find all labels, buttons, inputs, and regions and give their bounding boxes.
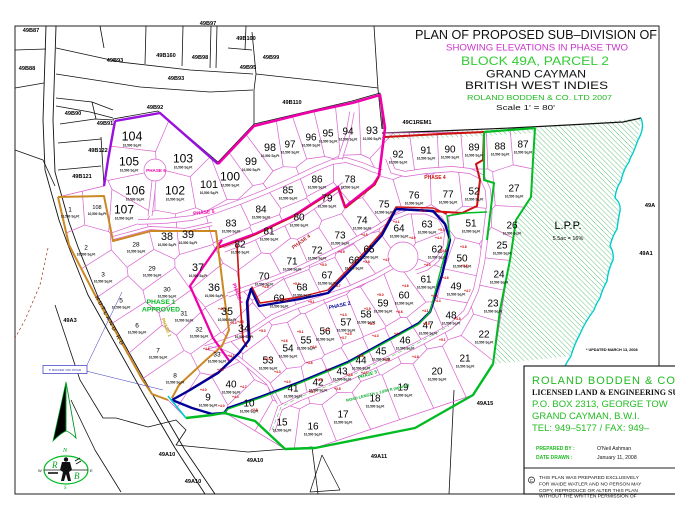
svg-text:10,500 Sq.Ft: 10,500 Sq.Ft xyxy=(231,251,251,255)
svg-text:10,500 Sq.Ft: 10,500 Sq.Ft xyxy=(199,404,219,408)
svg-text:+4.4: +4.4 xyxy=(232,395,239,399)
svg-text:25: 25 xyxy=(496,241,508,252)
svg-text:+5.1: +5.1 xyxy=(293,282,300,286)
svg-text:+4.2: +4.2 xyxy=(383,358,390,362)
svg-text:108: 108 xyxy=(92,205,101,211)
svg-text:49B122: 49B122 xyxy=(88,148,108,154)
svg-text:+4.6: +4.6 xyxy=(442,276,449,280)
svg-text:10,500 Sq.Ft: 10,500 Sq.Ft xyxy=(447,293,467,297)
svg-text:+4.6: +4.6 xyxy=(402,284,409,288)
svg-text:10,500 Sq.Ft: 10,500 Sq.Ft xyxy=(166,197,186,201)
svg-text:+4.3: +4.3 xyxy=(424,263,431,267)
svg-text:10,500 Sq.Ft: 10,500 Sq.Ft xyxy=(319,140,339,144)
svg-text:10,500 Sq.Ft: 10,500 Sq.Ft xyxy=(115,216,135,220)
svg-text:49A11: 49A11 xyxy=(371,454,387,460)
svg-text:31: 31 xyxy=(180,310,188,317)
svg-text:10,500 Sq.Ft: 10,500 Sq.Ft xyxy=(331,242,351,246)
svg-text:92: 92 xyxy=(392,150,404,161)
svg-text:ROLAND BODDEN & CO. LTD: ROLAND BODDEN & CO. LTD 2007 xyxy=(467,93,612,102)
svg-text:54: 54 xyxy=(282,344,294,355)
svg-text:77: 77 xyxy=(442,190,454,201)
svg-text:10,500 Sq.Ft: 10,500 Sq.Ft xyxy=(514,151,534,155)
svg-text:10,500 Sq.Ft: 10,500 Sq.Ft xyxy=(128,330,148,334)
svg-text:52: 52 xyxy=(468,187,480,198)
svg-text:+4.4: +4.4 xyxy=(434,299,441,303)
svg-text:86: 86 xyxy=(311,175,323,186)
svg-text:10,500 Sq.Ft: 10,500 Sq.Ft xyxy=(374,310,394,314)
svg-text:+3.8: +3.8 xyxy=(440,249,447,253)
svg-text:57: 57 xyxy=(340,318,352,329)
svg-text:APPROVED: APPROVED xyxy=(142,307,180,314)
svg-text:10,500 Sq.Ft: 10,500 Sq.Ft xyxy=(396,347,416,351)
svg-text:10,500 Sq.Ft: 10,500 Sq.Ft xyxy=(175,318,195,322)
svg-text:10,500 Sq.Ft: 10,500 Sq.Ft xyxy=(77,252,97,256)
svg-text:10,500 Sq.Ft: 10,500 Sq.Ft xyxy=(88,212,108,216)
svg-text:10,500 Sq.Ft: 10,500 Sq.Ft xyxy=(205,294,225,298)
svg-text:+4.4: +4.4 xyxy=(264,357,271,361)
svg-text:10,500 Sq.Ft: 10,500 Sq.Ft xyxy=(222,391,242,395)
svg-text:+3.6: +3.6 xyxy=(461,264,468,268)
svg-text:82: 82 xyxy=(234,240,246,251)
svg-text:COPY, REPRODUCE OR ALTER T: COPY, REPRODUCE OR ALTER THIS PLAN xyxy=(539,488,638,494)
svg-text:GRAND CAYMAN, B.W.I.: GRAND CAYMAN, B.W.I. xyxy=(532,411,640,422)
svg-text:38: 38 xyxy=(161,231,173,243)
svg-text:O'Neil Ashman: O'Neil Ashman xyxy=(597,446,631,452)
svg-text:9: 9 xyxy=(205,393,211,404)
svg-text:10,500 Sq.Ft: 10,500 Sq.Ft xyxy=(490,281,510,285)
svg-text:88: 88 xyxy=(494,142,506,153)
svg-text:102: 102 xyxy=(165,183,185,197)
svg-text:61: 61 xyxy=(420,275,432,286)
svg-text:84: 84 xyxy=(255,205,267,216)
svg-text:10,500 Sq.Ft: 10,500 Sq.Ft xyxy=(333,378,353,382)
svg-text:10,500 Sq.Ft: 10,500 Sq.Ft xyxy=(318,205,338,209)
svg-text:+4.3: +4.3 xyxy=(372,334,379,338)
svg-text:PLAN OF PROPOSED SUB–DIVISI: PLAN OF PROPOSED SUB–DIVISION OF xyxy=(415,27,657,42)
svg-text:+4.0: +4.0 xyxy=(323,328,330,332)
svg-text:+4.7: +4.7 xyxy=(309,390,316,394)
svg-text:8: 8 xyxy=(173,372,177,379)
svg-text:49B91: 49B91 xyxy=(97,121,113,127)
svg-text:+4.7: +4.7 xyxy=(240,385,247,389)
svg-text:+3.7: +3.7 xyxy=(334,284,341,288)
svg-text:+3.8: +3.8 xyxy=(334,387,341,391)
svg-text:96: 96 xyxy=(305,133,317,144)
svg-text:46: 46 xyxy=(399,336,411,347)
svg-text:10,500 Sq.Ft: 10,500 Sq.Ft xyxy=(334,421,354,425)
svg-text:+3.7: +3.7 xyxy=(340,336,347,340)
svg-text:94: 94 xyxy=(342,127,354,138)
svg-text:+5.0: +5.0 xyxy=(377,293,384,297)
svg-text:+4.4: +4.4 xyxy=(435,236,442,240)
svg-text:20: 20 xyxy=(431,367,443,378)
svg-text:65: 65 xyxy=(363,245,375,256)
svg-text:106: 106 xyxy=(125,183,145,197)
svg-text:+4.3: +4.3 xyxy=(274,370,281,374)
svg-text:+3.8: +3.8 xyxy=(346,373,353,377)
svg-text:Scale 1' = 80': Scale 1' = 80' xyxy=(496,103,556,112)
svg-text:10,500 Sq.Ft: 10,500 Sq.Ft xyxy=(503,232,523,236)
svg-text:+4.6: +4.6 xyxy=(281,339,288,343)
svg-text:2: 2 xyxy=(84,244,88,251)
svg-text:+4.7: +4.7 xyxy=(394,332,401,336)
svg-text:49B93: 49B93 xyxy=(168,76,184,82)
svg-text:72: 72 xyxy=(311,246,323,257)
svg-text:34: 34 xyxy=(238,323,250,335)
svg-text:+5.1: +5.1 xyxy=(297,330,304,334)
svg-text:+4.1: +4.1 xyxy=(228,354,235,358)
svg-text:64: 64 xyxy=(393,224,405,235)
svg-text:33: 33 xyxy=(213,351,221,358)
svg-text:49A3: 49A3 xyxy=(63,318,76,324)
svg-text:59: 59 xyxy=(377,299,389,310)
svg-text:97: 97 xyxy=(284,140,296,151)
svg-text:79: 79 xyxy=(321,194,333,205)
svg-text:+4.7: +4.7 xyxy=(325,368,332,372)
svg-text:10,500 Sq.Ft: 10,500 Sq.Ft xyxy=(341,186,361,190)
svg-text:B: B xyxy=(74,471,80,481)
svg-text:78: 78 xyxy=(344,175,356,186)
svg-text:5.5ac = 16%: 5.5ac = 16% xyxy=(553,236,584,242)
svg-text:104: 104 xyxy=(122,130,143,144)
svg-text:10,500 Sq.Ft: 10,500 Sq.Ft xyxy=(290,224,310,228)
svg-text:93: 93 xyxy=(366,125,378,137)
svg-text:10,500 Sq.Ft: 10,500 Sq.Ft xyxy=(418,231,438,235)
svg-text:101: 101 xyxy=(200,179,218,191)
svg-text:49B97: 49B97 xyxy=(200,21,216,27)
svg-text:49B110: 49B110 xyxy=(282,100,301,106)
svg-text:10,500 Sq.Ft: 10,500 Sq.Ft xyxy=(462,230,482,234)
svg-text:10,500 Sq.Ft: 10,500 Sq.Ft xyxy=(394,394,414,398)
svg-text:10,500 Sq.Ft: 10,500 Sq.Ft xyxy=(441,156,461,160)
svg-text:+5.0: +5.0 xyxy=(320,263,327,267)
svg-text:22: 22 xyxy=(478,330,490,341)
svg-text:81: 81 xyxy=(263,227,275,238)
svg-text:10,500 Sq.Ft: 10,500 Sq.Ft xyxy=(260,238,280,242)
svg-text:+4.1: +4.1 xyxy=(422,309,429,313)
svg-text:+4.7: +4.7 xyxy=(464,289,471,293)
svg-text:98: 98 xyxy=(264,142,276,154)
svg-text:71: 71 xyxy=(286,257,298,268)
svg-text:10,500 Sq.Ft: 10,500 Sq.Ft xyxy=(345,267,365,271)
svg-text:49A: 49A xyxy=(645,203,655,209)
svg-text:28: 28 xyxy=(132,241,140,248)
svg-text:6: 6 xyxy=(135,322,139,329)
svg-text:ROLAND BODDEN & CO.: ROLAND BODDEN & CO. xyxy=(532,375,675,387)
svg-text:WITHOUT THE WRITTEN PERMISS: WITHOUT THE WRITTEN PERMISSION OF xyxy=(539,494,637,500)
svg-text:10,500 Sq.Ft: 10,500 Sq.Ft xyxy=(417,157,437,161)
svg-text:+4.3: +4.3 xyxy=(340,313,347,317)
svg-text:SHOWING ELEVATIONS IN PHASE: SHOWING ELEVATIONS IN PHASE TWO xyxy=(446,43,628,53)
svg-text:73: 73 xyxy=(334,231,346,242)
svg-text:95: 95 xyxy=(322,129,334,140)
svg-text:+4.5: +4.5 xyxy=(345,332,352,336)
svg-text:10,500 Sq.Ft: 10,500 Sq.Ft xyxy=(158,294,178,298)
svg-text:45: 45 xyxy=(375,347,387,358)
svg-text:10,500 Sq.Ft: 10,500 Sq.Ft xyxy=(366,405,386,409)
svg-text:10,500 Sq.Ft: 10,500 Sq.Ft xyxy=(270,305,290,309)
svg-text:+3.8: +3.8 xyxy=(460,245,467,249)
svg-text:10,500 Sq.Ft: 10,500 Sq.Ft xyxy=(304,433,324,437)
svg-text:+3.9: +3.9 xyxy=(423,322,430,326)
svg-text:+4.8: +4.8 xyxy=(262,285,269,289)
svg-text:10,500 Sq.Ft: 10,500 Sq.Ft xyxy=(439,201,459,205)
svg-text:10,500 Sq.Ft: 10,500 Sq.Ft xyxy=(390,235,410,239)
svg-text:70: 70 xyxy=(258,272,270,283)
svg-text:10,500 Sq.Ft: 10,500 Sq.Ft xyxy=(190,334,210,338)
svg-text:10,500 Sq.Ft: 10,500 Sq.Ft xyxy=(293,294,313,298)
svg-text:10,500 Sq.Ft: 10,500 Sq.Ft xyxy=(465,154,485,158)
svg-text:10,500 Sq.Ft: 10,500 Sq.Ft xyxy=(189,274,209,278)
svg-text:+3.9: +3.9 xyxy=(364,307,371,311)
svg-text:90: 90 xyxy=(444,145,456,156)
svg-text:51: 51 xyxy=(465,219,477,230)
svg-text:49A1: 49A1 xyxy=(639,251,652,257)
svg-text:DATE DRAWN :: DATE DRAWN : xyxy=(536,455,573,461)
svg-text:3: 3 xyxy=(101,271,105,278)
svg-text:+4.3: +4.3 xyxy=(230,321,237,325)
svg-text:+4.0: +4.0 xyxy=(409,236,416,240)
svg-text:10,500 Sq.Ft: 10,500 Sq.Ft xyxy=(316,338,336,342)
svg-text:+5.0: +5.0 xyxy=(368,322,375,326)
svg-text:10,500 Sq.Ft: 10,500 Sq.Ft xyxy=(465,198,485,202)
svg-text:TEL: 949–5177 / FAX: 949–: TEL: 949–5177 / FAX: 949– xyxy=(532,423,650,434)
svg-text:7: 7 xyxy=(156,347,160,354)
svg-text:10,500 Sq.Ft: 10,500 Sq.Ft xyxy=(174,165,194,169)
svg-text:+5.0: +5.0 xyxy=(438,228,445,232)
svg-text:C: C xyxy=(530,478,533,483)
svg-text:85: 85 xyxy=(282,186,294,197)
svg-text:R: R xyxy=(51,460,58,470)
svg-text:58: 58 xyxy=(360,310,372,321)
svg-text:10,500 Sq.Ft: 10,500 Sq.Ft xyxy=(61,214,81,218)
svg-text:10,500 Sq.Ft: 10,500 Sq.Ft xyxy=(484,310,504,314)
svg-text:+3.8: +3.8 xyxy=(363,260,370,264)
svg-text:+4.0: +4.0 xyxy=(284,380,291,384)
svg-text:N: N xyxy=(62,447,68,454)
svg-text:10,500 Sq.Ft: 10,500 Sq.Ft xyxy=(279,355,299,359)
svg-text:10,500 Sq.Ft: 10,500 Sq.Ft xyxy=(281,151,301,155)
svg-text:10,500 Sq.Ft: 10,500 Sq.Ft xyxy=(283,268,303,272)
svg-text:+3.8: +3.8 xyxy=(316,378,323,382)
svg-text:+4.4: +4.4 xyxy=(310,345,317,349)
svg-text:+4.6: +4.6 xyxy=(203,347,210,351)
svg-text:10,500 Sq.Ft: 10,500 Sq.Ft xyxy=(395,302,415,306)
svg-text:January 11, 2008: January 11, 2008 xyxy=(597,455,637,461)
svg-text:+3.6: +3.6 xyxy=(306,361,313,365)
svg-text:49B121: 49B121 xyxy=(72,174,92,180)
svg-text:49B98: 49B98 xyxy=(192,55,208,61)
svg-text:49B90: 49B90 xyxy=(65,111,81,117)
svg-text:10,500 Sq.Ft: 10,500 Sq.Ft xyxy=(149,355,169,359)
svg-text:75: 75 xyxy=(378,200,390,211)
svg-text:10,500 Sq.Ft: 10,500 Sq.Ft xyxy=(308,257,328,261)
svg-text:66: 66 xyxy=(348,256,360,267)
svg-text:49B95: 49B95 xyxy=(240,65,256,71)
svg-text:10,500 Sq.Ft: 10,500 Sq.Ft xyxy=(127,249,147,253)
svg-text:* UPDATED MARCH 13, 2008: * UPDATED MARCH 13, 2008 xyxy=(586,348,638,352)
svg-text:+4.4: +4.4 xyxy=(419,209,426,213)
svg-text:10,500 Sq.Ft: 10,500 Sq.Ft xyxy=(339,138,359,142)
svg-text:10,500 Sq.Ft: 10,500 Sq.Ft xyxy=(456,365,476,369)
svg-text:10,500 Sq.Ft: 10,500 Sq.Ft xyxy=(405,202,425,206)
svg-text:FOR WAIDE WATLER AND NO P: FOR WAIDE WATLER AND NO PERSON MAY xyxy=(539,482,642,488)
svg-text:63: 63 xyxy=(421,220,433,231)
svg-text:29: 29 xyxy=(148,265,156,272)
svg-text:49B160: 49B160 xyxy=(156,53,176,59)
svg-text:+4.8: +4.8 xyxy=(357,354,364,358)
svg-text:80: 80 xyxy=(293,213,305,224)
svg-text:10,500 Sq.Ft: 10,500 Sq.Ft xyxy=(428,378,448,382)
svg-text:+3.7: +3.7 xyxy=(283,299,290,303)
svg-text:10,500 Sq.Ft: 10,500 Sq.Ft xyxy=(505,195,525,199)
svg-text:+5.1: +5.1 xyxy=(308,300,315,304)
svg-text:10,500 Sq.Ft: 10,500 Sq.Ft xyxy=(221,183,241,187)
svg-text:10,500 Sq.Ft: 10,500 Sq.Ft xyxy=(235,335,255,339)
svg-text:49B99: 49B99 xyxy=(263,55,279,61)
svg-text:49A10: 49A10 xyxy=(159,452,175,458)
svg-text:10,500 Sq.Ft: 10,500 Sq.Ft xyxy=(273,429,293,433)
svg-text:10,500 Sq.Ft: 10,500 Sq.Ft xyxy=(200,191,220,195)
svg-text:67: 67 xyxy=(321,271,333,282)
svg-text:10,500 Sq.Ft: 10,500 Sq.Ft xyxy=(308,186,328,190)
svg-text:5' BUFFER OFF ROAD: 5' BUFFER OFF ROAD xyxy=(49,368,82,372)
svg-text:10,500 Sq.Ft: 10,500 Sq.Ft xyxy=(94,279,114,283)
svg-text:P.O. BOX 2313, GEORGE TOW: P.O. BOX 2313, GEORGE TOW xyxy=(532,399,668,410)
svg-text:PHASE 1: PHASE 1 xyxy=(146,299,175,306)
svg-text:10,500 Sq.Ft: 10,500 Sq.Ft xyxy=(419,332,439,336)
svg-text:10,500 Sq.Ft: 10,500 Sq.Ft xyxy=(428,256,448,260)
svg-text:10,500 Sq.Ft: 10,500 Sq.Ft xyxy=(363,137,383,141)
svg-text:17: 17 xyxy=(337,410,349,421)
svg-text:10,500 Sq.Ft: 10,500 Sq.Ft xyxy=(279,197,299,201)
svg-text:10,500 Sq.Ft: 10,500 Sq.Ft xyxy=(389,161,409,165)
svg-text:10,500 Sq.Ft: 10,500 Sq.Ft xyxy=(166,380,186,384)
svg-text:27: 27 xyxy=(508,184,520,195)
svg-text:89: 89 xyxy=(468,143,480,154)
svg-text:49B87: 49B87 xyxy=(23,28,39,34)
svg-text:10,500 Sq.Ft: 10,500 Sq.Ft xyxy=(179,241,199,245)
svg-text:10,500 Sq.Ft: 10,500 Sq.Ft xyxy=(143,273,163,277)
svg-text:+4.8: +4.8 xyxy=(237,320,244,324)
svg-text:10,500 Sq.Ft: 10,500 Sq.Ft xyxy=(126,197,146,201)
svg-text:+5.0: +5.0 xyxy=(259,329,266,333)
svg-text:60: 60 xyxy=(398,291,410,302)
svg-text:10,500 Sq.Ft: 10,500 Sq.Ft xyxy=(352,367,372,371)
svg-text:+4.8: +4.8 xyxy=(412,355,419,359)
svg-text:103: 103 xyxy=(173,151,193,165)
svg-text:BLOCK 49A, PARCEL 2: BLOCK 49A, PARCEL 2 xyxy=(461,56,609,68)
svg-text:+3.6: +3.6 xyxy=(251,408,258,412)
svg-text:76: 76 xyxy=(408,191,420,202)
svg-text:40: 40 xyxy=(225,380,237,391)
svg-text:10,500 Sq.Ft: 10,500 Sq.Ft xyxy=(491,153,511,157)
svg-text:10,500 Sq.Ft: 10,500 Sq.Ft xyxy=(442,322,462,326)
svg-text:107: 107 xyxy=(114,202,134,216)
svg-text:10,500 Sq.Ft: 10,500 Sq.Ft xyxy=(242,168,262,172)
svg-text:+3.8: +3.8 xyxy=(454,317,461,321)
svg-text:50: 50 xyxy=(456,254,468,265)
svg-text:E: E xyxy=(90,468,93,473)
svg-text:10,500 Sq.Ft: 10,500 Sq.Ft xyxy=(158,243,178,247)
svg-text:105: 105 xyxy=(119,154,139,168)
svg-text:+4.5: +4.5 xyxy=(361,233,368,237)
svg-text:10,500 Sq.Ft: 10,500 Sq.Ft xyxy=(252,216,272,220)
svg-text:THIS PLAN WAS PREPARED EXC: THIS PLAN WAS PREPARED EXCLUSIVELY xyxy=(539,475,640,481)
svg-text:+4.0: +4.0 xyxy=(200,388,207,392)
svg-text:49B100: 49B100 xyxy=(236,36,256,42)
svg-text:10,500 Sq.Ft: 10,500 Sq.Ft xyxy=(417,286,437,290)
svg-text:74: 74 xyxy=(356,216,368,227)
svg-text:21: 21 xyxy=(459,354,471,365)
svg-text:39: 39 xyxy=(182,229,194,241)
svg-text:37: 37 xyxy=(192,262,204,274)
svg-text:5: 5 xyxy=(119,297,123,304)
svg-text:32: 32 xyxy=(195,326,203,333)
svg-text:+5.1: +5.1 xyxy=(439,338,446,342)
svg-text:49B93: 49B93 xyxy=(107,58,123,64)
svg-text:49A15: 49A15 xyxy=(477,401,493,407)
svg-text:GRAND CAYMAN: GRAND CAYMAN xyxy=(486,69,586,81)
svg-text:26: 26 xyxy=(506,221,518,232)
svg-text:+4.7: +4.7 xyxy=(383,258,390,262)
svg-text:PHASE 6: PHASE 6 xyxy=(146,168,166,173)
svg-text:PREPARED BY :: PREPARED BY : xyxy=(536,446,575,452)
svg-text:10,500 Sq.Ft: 10,500 Sq.Ft xyxy=(475,341,495,345)
svg-text:+4.0: +4.0 xyxy=(218,307,225,311)
svg-text:+4.9: +4.9 xyxy=(338,250,345,254)
svg-text:24: 24 xyxy=(493,270,505,281)
svg-text:49B88: 49B88 xyxy=(19,66,35,72)
svg-text:36: 36 xyxy=(208,282,220,294)
svg-text:10,500 Sq.Ft: 10,500 Sq.Ft xyxy=(375,211,395,215)
svg-text:100: 100 xyxy=(220,169,240,183)
svg-text:91: 91 xyxy=(420,146,432,157)
svg-text:30: 30 xyxy=(163,286,171,293)
svg-text:49: 49 xyxy=(450,282,462,293)
svg-text:10,500 Sq.Ft: 10,500 Sq.Ft xyxy=(360,256,380,260)
svg-text:10,500 Sq.Ft: 10,500 Sq.Ft xyxy=(222,230,242,234)
svg-text:49A10: 49A10 xyxy=(185,479,201,485)
svg-text:10,500 Sq.Ft: 10,500 Sq.Ft xyxy=(284,395,304,399)
svg-text:1: 1 xyxy=(68,206,72,213)
svg-text:10,500 Sq.Ft: 10,500 Sq.Ft xyxy=(302,144,322,148)
svg-text:10,500 Sq.Ft: 10,500 Sq.Ft xyxy=(493,252,513,256)
svg-text:10,500 Sq.Ft: 10,500 Sq.Ft xyxy=(120,168,140,172)
svg-text:LICENSED LAND & ENGINEERING: LICENSED LAND & ENGINEERING SU xyxy=(532,388,675,397)
svg-text:+4.6: +4.6 xyxy=(396,310,403,314)
svg-text:10,500 Sq.Ft: 10,500 Sq.Ft xyxy=(353,227,373,231)
svg-text:+4.0: +4.0 xyxy=(218,404,225,408)
svg-text:10,500 Sq.Ft: 10,500 Sq.Ft xyxy=(261,154,281,158)
svg-text:L.P.P.: L.P.P. xyxy=(554,220,581,232)
svg-text:87: 87 xyxy=(517,140,529,151)
svg-text:W: W xyxy=(38,468,42,473)
svg-text:49B92: 49B92 xyxy=(147,105,163,111)
svg-text:10,500 Sq.Ft: 10,500 Sq.Ft xyxy=(123,144,143,148)
svg-text:BRITISH WEST INDIES: BRITISH WEST INDIES xyxy=(465,80,608,92)
svg-text:83: 83 xyxy=(225,219,237,230)
svg-text:10,500 Sq.Ft: 10,500 Sq.Ft xyxy=(208,359,228,363)
svg-text:49A10: 49A10 xyxy=(247,458,263,464)
svg-text:+4.1: +4.1 xyxy=(393,220,400,224)
svg-text:23: 23 xyxy=(487,299,499,310)
svg-text:99: 99 xyxy=(245,156,257,168)
svg-text:PHASE 4: PHASE 4 xyxy=(424,175,446,181)
svg-text:15: 15 xyxy=(276,418,288,429)
svg-text:49C1REM1: 49C1REM1 xyxy=(403,120,432,126)
svg-text:+4.2: +4.2 xyxy=(431,294,438,298)
